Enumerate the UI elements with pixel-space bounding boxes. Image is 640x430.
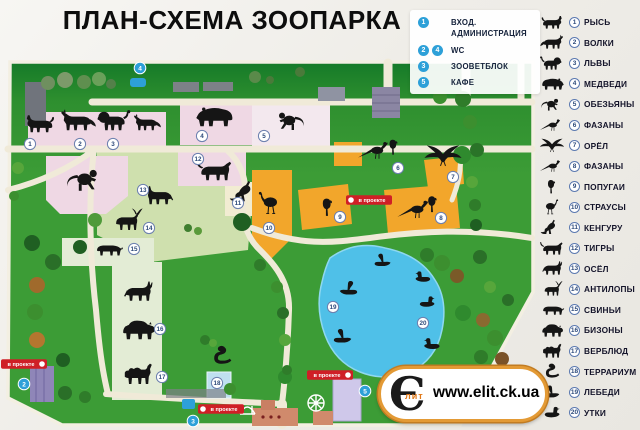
legend-row-ostrich: 10СТРАУСЫ <box>538 197 640 218</box>
svg-text:12: 12 <box>194 156 202 163</box>
lion-icon <box>539 55 565 72</box>
legend-row-monkey: 5ОБЕЗЬЯНЫ <box>538 94 640 115</box>
legend-row-tiger: 12ТИГРЫ <box>538 238 640 259</box>
wolf-icon <box>539 34 565 51</box>
animal-label: СВИНЬИ <box>584 305 621 315</box>
animal-number-badge: 8 <box>569 161 580 172</box>
animal-label: ОСЁЛ <box>584 264 609 274</box>
map-enclosure-marker: 2 <box>74 138 85 149</box>
svg-text:в проекте: в проекте <box>211 407 238 413</box>
facility-label: ЗООВЕТБЛОК <box>451 61 508 72</box>
animal-label: БИЗОНЫ <box>584 325 623 335</box>
watermark-pill: Є лит www.elit.ck.ua <box>378 366 548 422</box>
animal-number-badge: 20 <box>569 407 580 418</box>
map-enclosure-marker: 6 <box>392 162 403 173</box>
lynx-icon <box>539 14 565 31</box>
facility-legend-row: 5КАФЕ <box>418 77 534 88</box>
map-enclosure-marker: 8 <box>435 212 446 223</box>
legend-row-pig: 15СВИНЬИ <box>538 300 640 321</box>
facility-number-badge: 5 <box>418 77 429 88</box>
svg-text:8: 8 <box>439 215 443 222</box>
svg-text:5: 5 <box>363 388 367 395</box>
map-enclosure-marker: 3 <box>107 138 118 149</box>
facility-label: КАФЕ <box>451 77 474 88</box>
kangaroo-icon <box>539 219 565 236</box>
legend-row-cobra: 18ТЕРРАРИУМ <box>538 361 640 382</box>
watermark-logo-subtext: лит <box>405 391 424 401</box>
watermark-url: www.elit.ck.ua <box>433 384 539 402</box>
watermark: Є лит www.elit.ck.ua <box>378 366 548 422</box>
svg-text:9: 9 <box>338 214 342 221</box>
monkey-icon <box>539 96 565 113</box>
svg-text:20: 20 <box>419 320 427 327</box>
animal-number-badge: 4 <box>569 78 580 89</box>
map-enclosure-marker: 4 <box>196 130 207 141</box>
animal-number-badge: 14 <box>569 284 580 295</box>
animal-label: ПОПУГАИ <box>584 182 625 192</box>
animals-legend: 1РЫСЬ2ВОЛКИ3ЛЬВЫ4МЕДВЕДИ5ОБЕЗЬЯНЫ6ФАЗАНЫ… <box>538 12 640 423</box>
pheasant-icon <box>539 158 565 175</box>
project-label: в проекте <box>198 404 244 414</box>
map-enclosure-marker: 14 <box>143 222 154 233</box>
animal-label: ТЕРРАРИУМ <box>584 367 636 377</box>
animal-label: ЛЬВЫ <box>584 58 611 68</box>
legend-row-duck: 20УТКИ <box>538 402 640 423</box>
legend-row-swan: 19ЛЕБЕДИ <box>538 382 640 403</box>
facility-number-badge: 2 <box>418 45 429 56</box>
tiger-icon <box>539 240 565 257</box>
animal-number-badge: 5 <box>569 99 580 110</box>
map-enclosure-marker: 19 <box>327 301 338 312</box>
svg-text:2: 2 <box>22 381 26 388</box>
animal-number-badge: 18 <box>569 366 580 377</box>
facilities-legend: 1ВХОД. АДМИНИСТРАЦИЯ24WC3ЗООВЕТБЛОК5КАФЕ <box>410 10 540 94</box>
animal-number-badge: 17 <box>569 346 580 357</box>
eagle-icon <box>539 137 565 154</box>
map-enclosure-marker: 20 <box>417 317 428 328</box>
legend-row-lion: 3ЛЬВЫ <box>538 53 640 74</box>
facility-legend-row: 3ЗООВЕТБЛОК <box>418 61 534 72</box>
animal-number-badge: 6 <box>569 120 580 131</box>
page-title: ПЛАН-СХЕМА ЗООПАРКА <box>62 5 402 36</box>
svg-text:2: 2 <box>78 141 82 148</box>
legend-row-kangaroo: 11КЕНГУРУ <box>538 217 640 238</box>
animal-label: ОРЁЛ <box>584 141 608 151</box>
svg-text:19: 19 <box>329 304 337 311</box>
map-enclosure-marker: 1 <box>24 138 35 149</box>
svg-text:13: 13 <box>139 187 147 194</box>
animal-number-badge: 19 <box>569 387 580 398</box>
svg-text:3: 3 <box>191 418 195 425</box>
project-label: в проекте <box>346 195 392 205</box>
map-enclosure-marker: 15 <box>128 243 139 254</box>
legend-row-wolf: 2ВОЛКИ <box>538 33 640 54</box>
svg-text:14: 14 <box>145 225 153 232</box>
project-label: в проекте <box>1 359 47 369</box>
antelope-icon <box>539 281 565 298</box>
svg-text:15: 15 <box>130 246 138 253</box>
map-facility-marker: 2 <box>18 378 30 390</box>
animal-number-badge: 3 <box>569 58 580 69</box>
animal-label: СТРАУСЫ <box>584 202 626 212</box>
legend-row-parrot: 9ПОПУГАИ <box>538 176 640 197</box>
map-enclosure-marker: 13 <box>137 184 148 195</box>
animal-number-badge: 1 <box>569 17 580 28</box>
animal-label: КЕНГУРУ <box>584 223 622 233</box>
facility-legend-row: 1ВХОД. АДМИНИСТРАЦИЯ <box>418 17 534 40</box>
svg-text:в проекте: в проекте <box>8 362 35 368</box>
zoo-map-sign: 12345678910111213141516171819204235в про… <box>0 0 640 430</box>
svg-text:4: 4 <box>138 65 142 72</box>
map-enclosure-marker: 5 <box>258 130 269 141</box>
map-enclosure-marker: 12 <box>192 153 203 164</box>
animal-label: РЫСЬ <box>584 17 610 27</box>
svg-text:18: 18 <box>213 380 221 387</box>
facility-number-badge: 4 <box>432 45 443 56</box>
bison-icon <box>539 322 565 339</box>
ostrich-icon <box>539 199 565 216</box>
map-enclosure-marker: 18 <box>211 377 222 388</box>
svg-text:17: 17 <box>158 374 166 381</box>
parrot-icon <box>539 178 565 195</box>
donkey-icon <box>539 260 565 277</box>
svg-text:1: 1 <box>28 141 32 148</box>
animal-label: ЛЕБЕДИ <box>584 387 620 397</box>
animal-label: МЕДВЕДИ <box>584 79 627 89</box>
map-facility-marker: 3 <box>187 415 199 427</box>
legend-row-antelope: 14АНТИЛОПЫ <box>538 279 640 300</box>
legend-row-bear: 4МЕДВЕДИ <box>538 74 640 95</box>
animal-label: ВЕРБЛЮД <box>584 346 628 356</box>
svg-text:в проекте: в проекте <box>359 198 386 204</box>
svg-text:7: 7 <box>451 174 455 181</box>
facility-label: ВХОД. АДМИНИСТРАЦИЯ <box>451 17 534 40</box>
map-enclosure-marker: 16 <box>154 323 165 334</box>
animal-number-badge: 2 <box>569 37 580 48</box>
animal-label: ВОЛКИ <box>584 38 614 48</box>
svg-text:5: 5 <box>262 133 266 140</box>
svg-text:16: 16 <box>156 326 164 333</box>
camel-icon <box>539 343 565 360</box>
animal-label: ОБЕЗЬЯНЫ <box>584 99 634 109</box>
facility-number-badge: 3 <box>418 61 429 72</box>
map-enclosure-marker: 10 <box>263 222 274 233</box>
pheasant-icon <box>539 117 565 134</box>
legend-row-donkey: 13ОСЁЛ <box>538 259 640 280</box>
animal-label: ТИГРЫ <box>584 243 614 253</box>
animal-number-badge: 7 <box>569 140 580 151</box>
svg-text:6: 6 <box>396 165 400 172</box>
animal-number-badge: 12 <box>569 243 580 254</box>
map-enclosure-marker: 7 <box>447 171 458 182</box>
bear-icon <box>539 75 565 92</box>
legend-row-eagle: 7ОРЁЛ <box>538 135 640 156</box>
animal-number-badge: 13 <box>569 263 580 274</box>
facility-number-badge: 1 <box>418 17 429 28</box>
map-enclosure-marker: 11 <box>232 197 243 208</box>
map-enclosure-marker: 9 <box>334 211 345 222</box>
animal-label: АНТИЛОПЫ <box>584 284 635 294</box>
legend-row-camel: 17ВЕРБЛЮД <box>538 341 640 362</box>
legend-row-pheasant: 8ФАЗАНЫ <box>538 156 640 177</box>
animal-label: ФАЗАНЫ <box>584 161 623 171</box>
legend-row-pheasant: 6ФАЗАНЫ <box>538 115 640 136</box>
project-label: в проекте <box>307 370 353 380</box>
animal-number-badge: 16 <box>569 325 580 336</box>
animal-label: УТКИ <box>584 408 606 418</box>
animal-number-badge: 11 <box>569 222 580 233</box>
svg-text:3: 3 <box>111 141 115 148</box>
animal-number-badge: 9 <box>569 181 580 192</box>
pig-icon <box>539 301 565 318</box>
facility-label: WC <box>451 45 465 56</box>
map-facility-marker: 5 <box>359 385 371 397</box>
legend-row-lynx: 1РЫСЬ <box>538 12 640 33</box>
svg-text:10: 10 <box>265 225 273 232</box>
map-enclosure-marker: 17 <box>156 371 167 382</box>
svg-text:11: 11 <box>235 200 242 207</box>
animal-label: ФАЗАНЫ <box>584 120 623 130</box>
legend-row-bison: 16БИЗОНЫ <box>538 320 640 341</box>
svg-text:4: 4 <box>200 133 204 140</box>
facility-legend-row: 24WC <box>418 45 534 56</box>
map-facility-marker: 4 <box>134 62 146 74</box>
animal-number-badge: 10 <box>569 202 580 213</box>
animal-number-badge: 15 <box>569 304 580 315</box>
svg-text:в проекте: в проекте <box>314 373 341 379</box>
